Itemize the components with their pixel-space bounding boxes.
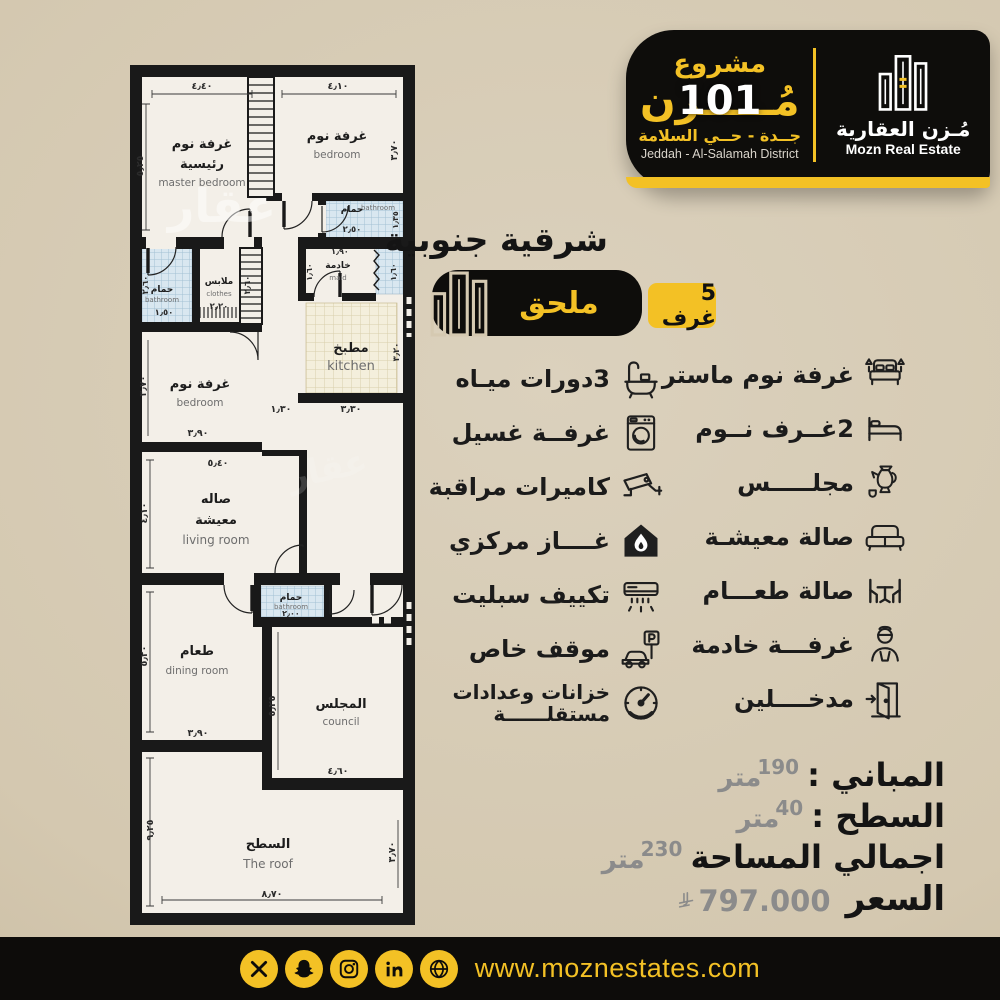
private-parking-icon (619, 627, 663, 671)
bathtub-icon (619, 357, 663, 401)
svg-text:bathroom: bathroom (145, 296, 179, 304)
feature-split-ac: تكييف سبليت (458, 568, 663, 622)
central-gas-icon (619, 519, 663, 563)
svg-text:خادمة: خادمة (325, 261, 351, 271)
bed-icon (863, 407, 907, 451)
meters-gauge-icon (619, 681, 663, 725)
room-master-ar: غرفة نوم (172, 137, 232, 152)
svg-text:٥٫٢٥: ٥٫٢٥ (267, 695, 278, 716)
svg-text:٩٫٢٥: ٩٫٢٥ (145, 819, 156, 840)
feature-master-bedroom: غرفة نوم ماستر (689, 348, 907, 402)
feature-bedrooms: 2غــرف نــوم (689, 402, 907, 456)
svg-text:٣٫٢٠: ٣٫٢٠ (392, 343, 402, 362)
split-ac-icon (619, 573, 663, 617)
rooms-list: غرفة نوم ماستر 2غــرف نــوم مجلـــــس (689, 348, 907, 726)
amenities-list: 3دورات ميـاه غرفــة غسيل كاميرات مراقب (458, 352, 663, 730)
svg-text:٣٫٣٠: ٣٫٣٠ (341, 404, 362, 415)
stat-buildings: المباني : 190متر (602, 756, 945, 794)
svg-text:صاله: صاله (201, 492, 231, 507)
svg-text:٢٫٥٠: ٢٫٥٠ (343, 225, 362, 235)
svg-text:غرفة نوم: غرفة نوم (170, 377, 230, 392)
location-en: Jeddah - Al-Salamah District (641, 147, 799, 161)
orientation-label: شرقية جنوبية (428, 220, 608, 259)
svg-text:السطح: السطح (246, 837, 291, 852)
brand-info: مُـزن العقارية Mozn Real Estate (816, 30, 990, 188)
svg-text:bathroom: bathroom (361, 204, 395, 212)
svg-text:٥٫٤٠: ٥٫٤٠ (208, 458, 229, 469)
stats-block: المباني : 190متر السطح : 40متر اجمالي ال… (602, 756, 945, 922)
feature-entrances: مدخــــلين (689, 672, 907, 726)
svg-text:٢٫٢٠: ٢٫٢٠ (210, 302, 229, 312)
washing-machine-icon (619, 411, 663, 455)
website-url[interactable]: www.moznestates.com (475, 953, 761, 984)
x-twitter-icon[interactable] (240, 950, 278, 988)
svg-text:kitchen: kitchen (327, 359, 375, 374)
svg-text:١٫٥٠: ١٫٥٠ (155, 308, 174, 318)
svg-text:٣٫٧٠: ٣٫٧٠ (138, 376, 149, 397)
svg-text:٣٫٧٠: ٣٫٧٠ (389, 140, 400, 161)
svg-text:٤٫٤٠: ٤٫٤٠ (192, 81, 213, 92)
svg-text:ملابس: ملابس (205, 277, 234, 287)
stat-total-area: اجمالي المساحة 230متر (602, 838, 945, 876)
feature-bathrooms: 3دورات ميـاه (458, 352, 663, 406)
feature-central-gas: غــــاز مركزي (458, 514, 663, 568)
project-label: مشروع (673, 49, 766, 79)
svg-text:٢٫٦٠: ٢٫٦٠ (141, 276, 151, 295)
master-bed-icon (863, 353, 907, 397)
feature-parking: موقف خاص (458, 622, 663, 676)
brand-name-ar: مُـزن العقارية (836, 117, 970, 141)
svg-text:٤٫٦٠: ٤٫٦٠ (328, 766, 349, 777)
svg-text:حمام: حمام (341, 205, 364, 215)
linkedin-icon[interactable] (375, 950, 413, 988)
svg-text:٢٫٠٠: ٢٫٠٠ (282, 609, 300, 618)
svg-text:١٫٩٠: ١٫٩٠ (331, 247, 349, 256)
svg-text:معيشة: معيشة (195, 513, 237, 528)
price-value: 797.000 (698, 884, 830, 918)
svg-text:١٫٦٠: ١٫٦٠ (305, 263, 314, 281)
svg-text:٣٫٩٠: ٣٫٩٠ (188, 428, 209, 439)
svg-text:council: council (322, 716, 359, 728)
annex-label: ملحق (519, 286, 598, 321)
room-master-ar2: رئيسية (180, 157, 224, 172)
feature-cctv: كاميرات مراقبة (458, 460, 663, 514)
feature-dining-room: صالة طعـــام (689, 564, 907, 618)
svg-text:٢٫٦٠: ٢٫٦٠ (243, 276, 253, 295)
svg-text:حمام: حمام (151, 285, 174, 295)
svg-text:bedroom: bedroom (177, 397, 224, 409)
svg-text:حمام: حمام (280, 593, 303, 603)
real-estate-poster: غرفة نوم رئيسية master bedroom غرفة نوم … (0, 0, 1000, 1000)
mozn-logo-watermark (426, 262, 492, 344)
feature-laundry: غرفــة غسيل (458, 406, 663, 460)
svg-text:١٫٣٠: ١٫٣٠ (271, 404, 292, 415)
stat-price: السعر 797.000 (602, 879, 945, 919)
sofa-icon (863, 515, 907, 559)
footer-bar: www.moznestates.com (0, 937, 1000, 1000)
svg-text:dining room: dining room (166, 665, 229, 677)
project-name: مُـــــزن 101 (640, 79, 800, 123)
brand-name-en: Mozn Real Estate (846, 141, 961, 157)
maid-icon (863, 623, 907, 667)
cctv-camera-icon (619, 465, 663, 509)
location-ar: جــدة - حــي السلامة (638, 126, 801, 145)
snapchat-icon[interactable] (285, 950, 323, 988)
svg-text:المجلس: المجلس (315, 697, 366, 712)
svg-text:٤٫١٠: ٤٫١٠ (139, 503, 150, 524)
feature-maid-room: غرفـــة خادمة (689, 618, 907, 672)
header-card: مشروع مُـــــزن 101 جــدة - حــي السلامة… (626, 30, 990, 188)
svg-text:٣٫٧٠: ٣٫٧٠ (387, 842, 398, 863)
feature-meters: خزانات وعدادات مستقلــــــة (458, 676, 663, 730)
watermark: عقار (166, 179, 276, 233)
svg-text:٥٫٢٠: ٥٫٢٠ (139, 646, 150, 667)
annex-badge: ملحق (432, 270, 642, 336)
svg-text:clothes: clothes (206, 290, 232, 298)
svg-text:مطبخ: مطبخ (333, 341, 368, 356)
mozn-logo-icon (872, 51, 934, 113)
svg-text:living room: living room (182, 533, 249, 547)
instagram-icon[interactable] (330, 950, 368, 988)
coffee-pot-icon (863, 461, 907, 505)
svg-text:١٫٦٠: ١٫٦٠ (389, 263, 398, 281)
stat-roof: السطح : 40متر (602, 797, 945, 835)
svg-text:The roof: The roof (242, 857, 293, 871)
svg-text:٣٫٩٠: ٣٫٩٠ (188, 728, 209, 739)
rooms-count-badge: 5 غرف (648, 283, 716, 328)
svg-text:bedroom: bedroom (314, 149, 361, 161)
svg-text:maid: maid (329, 274, 347, 282)
feature-living-room: صالة معيشـة (689, 510, 907, 564)
svg-text:غرفة نوم: غرفة نوم (307, 129, 367, 144)
globe-icon[interactable] (420, 950, 458, 988)
dining-table-icon (863, 569, 907, 613)
riyal-symbol (678, 891, 695, 910)
svg-text:٨٫٧٠: ٨٫٧٠ (262, 889, 283, 900)
svg-text:٤٫١٠: ٤٫١٠ (328, 81, 349, 92)
door-icon (863, 677, 907, 721)
feature-majlis: مجلـــــس (689, 456, 907, 510)
project-info: مشروع مُـــــزن 101 جــدة - حــي السلامة… (626, 30, 813, 188)
svg-text:طعام: طعام (180, 644, 214, 659)
project-number: 101 (678, 80, 762, 122)
svg-text:٥٫٢٥: ٥٫٢٥ (135, 155, 146, 176)
